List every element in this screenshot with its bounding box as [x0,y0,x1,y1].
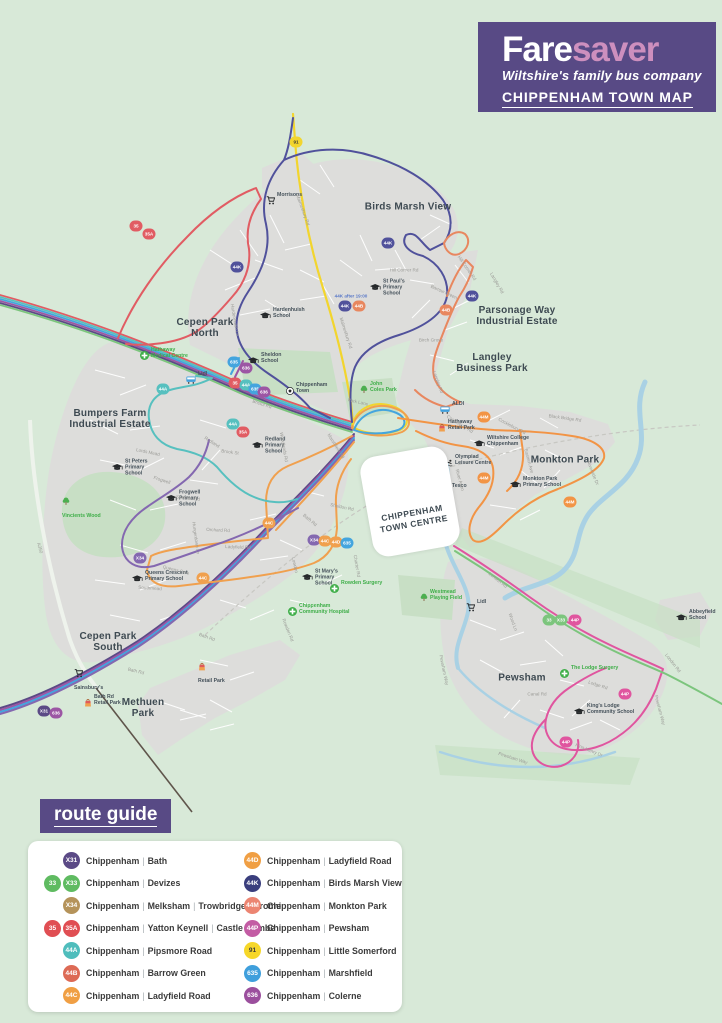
separator: | [323,856,325,866]
poi-bag: Bath Rd Retail Park [84,694,121,712]
route-badges: 635 [215,965,261,982]
school-icon [474,435,485,453]
route-guide-column-left: X31Chippenham|Bath33X33Chippenham|Devize… [34,850,215,1006]
area-label: Birds Marsh View [365,201,451,212]
map-route-badge: 44P [560,737,573,748]
cart-icon [74,665,83,683]
bag-icon [84,694,92,712]
route-badges: 44B [34,965,80,982]
map-route-badge: 44K [382,238,395,249]
poi-label: Sheldon School [261,352,281,364]
faresaver-header: Faresaver Wiltshire's family bus company… [478,22,716,112]
bag-icon [198,658,206,676]
poi-cart: Sainsbury's [74,665,103,691]
separator: | [323,991,325,1001]
area-label: Pewsham [498,672,546,683]
bus-icon [186,371,196,389]
map-route-badge: 35A [143,229,156,240]
area-label: Bumpers Farm Industrial Estate [69,408,150,430]
route-badges: 44D [215,852,261,869]
separator: | [323,923,325,933]
route-badges: 3535A [34,920,80,937]
route-number-badge: 33 [44,875,61,892]
separator: | [142,923,144,933]
poi-label: Wiltshire College Chippenham [487,435,529,447]
poi-label: King's Lodge Community School [587,703,634,715]
map-route-badge: 44K [466,291,479,302]
map-route-badge: X31 [38,706,51,717]
poi-label: Lidl [477,599,486,605]
poi-label: John Coles Park [370,381,397,393]
separator: | [323,901,325,911]
poi-label: Olympiad Leisure Centre [455,454,491,466]
poi-label: Lidl [198,371,207,377]
poi-cart: Lidl [466,599,486,617]
logo-fare: Fare [502,30,572,69]
road-label: Hill Corner Rd [390,268,419,273]
poi-bag: Retail Park [198,658,225,684]
separator: | [142,901,144,911]
route-badges: 44C [34,987,80,1004]
map-route-badge: 44K [339,301,352,312]
school-icon [252,437,263,455]
route-guide-row: 91Chippenham|Little Somerford [215,940,396,961]
medical-icon [560,665,569,683]
route-guide-row: X34Chippenham|Melksham|Trowbridge|Frome [34,895,215,916]
map-title: CHIPPENHAM TOWN MAP [502,89,693,108]
poi-medical: Hathaway Medical Centre [140,347,188,365]
poi-tree: Westmead Playing Field [420,589,462,607]
poi-school: King's Lodge Community School [574,703,634,721]
school-icon [260,307,271,325]
separator: | [323,946,325,956]
separator: | [323,968,325,978]
poi-label: Chippenham Community Hospital [299,603,349,615]
football-icon [286,382,294,400]
poi-label: Chippenham Town [296,382,327,394]
logo-saver: saver [572,30,658,69]
route-number-badge: 35A [63,920,80,937]
route-badges: 44A [34,942,80,959]
route-description: Chippenham|Birds Marsh View [267,878,402,888]
poi-bus: Lidl [186,371,207,389]
poi-label: Rowden Surgery [341,580,382,586]
route-number-badge: 44M [244,897,261,914]
poi-school: Hardenhuish School [260,307,305,325]
poi-label: Westmead Playing Field [430,589,462,601]
poi-tree: Vincients Wood [62,493,101,519]
map-route-badge: 44C [263,518,276,529]
map-note: 44K after 19:00 [335,294,368,299]
brand-tagline: Wiltshire's family bus company [502,68,716,83]
town-centre-box: CHIPPENHAM TOWN CENTRE [358,444,462,559]
separator: | [323,878,325,888]
poi-medical: Rowden Surgery [330,580,382,598]
poi-label: St Peters Primary School [125,459,148,478]
route-description: Chippenham|Bath [86,856,167,866]
separator: | [142,991,144,1001]
poi-label: St Paul's Primary School [383,279,405,298]
map-route-badge: 44K [231,262,244,273]
route-number-badge: 635 [244,965,261,982]
route-number-badge: X34 [63,897,80,914]
route-number-badge: 44C [63,987,80,1004]
poi-school: St Paul's Primary School [370,279,405,298]
map-route-badge: 636 [50,708,63,719]
map-route-badge: 635 [341,538,354,549]
route-guide-title: route guide [54,804,157,827]
area-label: Methuen Park [122,697,165,719]
route-guide-title-box: route guide [40,799,171,833]
route-description: Chippenham|Ladyfield Road [86,991,211,1001]
poi-label: Abbeyfield School [689,609,716,621]
poi-swim: Olympiad Leisure Centre [444,454,491,472]
route-description: Chippenham|Monkton Park [267,901,387,911]
poi-label: Bath Rd Retail Park [94,694,121,706]
map-route-badge: 636 [258,387,271,398]
route-number-badge: 44B [63,965,80,982]
separator: | [142,946,144,956]
map-route-badge: 35A [237,427,250,438]
poi-label: Hathaway Medical Centre [151,347,188,359]
route-guide-row: 44KChippenham|Birds Marsh View [215,873,396,894]
area-label: Cepen Park North [176,317,233,339]
route-badges: 44K [215,875,261,892]
faresaver-logo: Faresaver [502,32,716,67]
poi-label: ALDI [452,401,464,407]
road-label: Ladyfield Rd [225,544,251,550]
route-description: Chippenham|Colerne [267,991,361,1001]
area-label: Parsonage Way Industrial Estate [476,305,557,327]
route-description: Chippenham|Little Somerford [267,946,397,956]
school-icon [370,279,381,297]
route-guide-row: 636Chippenham|Colerne [215,985,396,1006]
chippenham-town-map-poster: { "header": { "brand_bold": "Fare", "bra… [0,0,722,1023]
route-number-badge: X31 [63,852,80,869]
route-badges: X34 [34,897,80,914]
medical-icon [330,580,339,598]
school-icon [112,459,123,477]
route-badges: X31 [34,852,80,869]
route-guide-row: 44PChippenham|Pewsham [215,918,396,939]
separator: | [142,968,144,978]
route-badges: 91 [215,942,261,959]
route-number-badge: 636 [244,987,261,1004]
route-number-badge: X33 [63,875,80,892]
bag-icon [438,419,446,437]
map-route-badge: 635 [228,357,241,368]
route-description: Chippenham|Pipsmore Road [86,946,212,956]
map-route-badge: 44A [157,384,170,395]
route-number-badge: 44K [244,875,261,892]
school-icon [574,703,585,721]
cart-icon [266,192,275,210]
separator: | [193,901,195,911]
poi-tree: John Coles Park [360,381,397,399]
route-guide-row: 33X33Chippenham|Devizes [34,873,215,894]
poi-label: Vincients Wood [62,513,101,519]
route-description: Chippenham|Devizes [86,878,180,888]
route-badges: 636 [215,987,261,1004]
medical-icon [288,603,297,621]
poi-label: Retail Park [198,678,225,684]
school-icon [302,569,313,587]
route-guide-row: 44MChippenham|Monkton Park [215,895,396,916]
route-description: Chippenham|Marshfield [267,968,373,978]
route-badges: 33X33 [34,875,80,892]
route-guide-row: 44BChippenham|Barrow Green [34,963,215,984]
map-route-badge: X34 [134,553,147,564]
school-icon [510,476,521,494]
map-route-badge: 44M [564,497,577,508]
route-number-badge: 44A [63,942,80,959]
route-description: Chippenham|Pewsham [267,923,369,933]
route-badges: 44P [215,920,261,937]
poi-school: Wiltshire College Chippenham [474,435,529,453]
poi-school: St Peters Primary School [112,459,148,478]
tree-icon [420,589,428,607]
route-guide-row: 635Chippenham|Marshfield [215,963,396,984]
poi-label: Monkton Park Primary School [523,476,561,488]
map-route-badge: 44P [619,689,632,700]
route-guide-row: 44CChippenham|Ladyfield Road [34,985,215,1006]
school-icon [676,609,687,627]
map-route-badge: 44C [197,573,210,584]
route-description: Chippenham|Barrow Green [86,968,206,978]
cart-icon [466,599,475,617]
poi-label: The Lodge Surgery [571,665,618,671]
tree-icon [360,381,368,399]
route-badges: 44M [215,897,261,914]
area-label: Langley Business Park [456,352,528,374]
route-guide-row: 44AChippenham|Pipsmore Road [34,940,215,961]
separator: | [142,878,144,888]
town-centre-label: CHIPPENHAM TOWN CENTRE [377,502,448,536]
map-route-badge: 44M [478,473,491,484]
route-number-badge: 44D [244,852,261,869]
road-label: Canal Rd [527,692,546,697]
separator: | [211,923,213,933]
route-guide-column-right: 44DChippenham|Ladyfield Road44KChippenha… [215,850,396,1006]
map-route-badge: 44B [353,301,366,312]
medical-icon [140,347,149,365]
poi-medical: Chippenham Community Hospital [288,603,349,621]
map-route-badge: 44P [569,615,582,626]
poi-school: Sheldon School [248,352,281,370]
separator: | [142,856,144,866]
map-route-badge: 44M [478,412,491,423]
poi-football: Chippenham Town [286,382,327,400]
poi-school: Monkton Park Primary School [510,476,561,494]
map-route-badge: 35 [130,221,143,232]
poi-label: Sainsbury's [74,685,103,691]
poi-label: Hardenhuish School [273,307,305,319]
route-number-badge: 91 [244,942,261,959]
map-route-badge: 636 [240,363,253,374]
road-label: Birch Grove [419,338,443,343]
route-number-badge: 44P [244,920,261,937]
map-route-badge: X33 [555,615,568,626]
area-label: Cepen Park South [79,631,136,653]
route-guide-row: X31Chippenham|Bath [34,850,215,871]
route-guide-card: X31Chippenham|Bath33X33Chippenham|Devize… [28,841,402,1012]
poi-school: Abbeyfield School [676,609,716,627]
tree-icon [62,493,70,511]
route-description: Chippenham|Ladyfield Road [267,856,392,866]
map-route-badge: 91 [290,137,303,148]
route-number-badge: 35 [44,920,61,937]
route-guide-row: 3535AChippenham|Yatton Keynell|Castle Co… [34,918,215,939]
map-route-badge: 44B [440,305,453,316]
route-guide-row: 44DChippenham|Ladyfield Road [215,850,396,871]
